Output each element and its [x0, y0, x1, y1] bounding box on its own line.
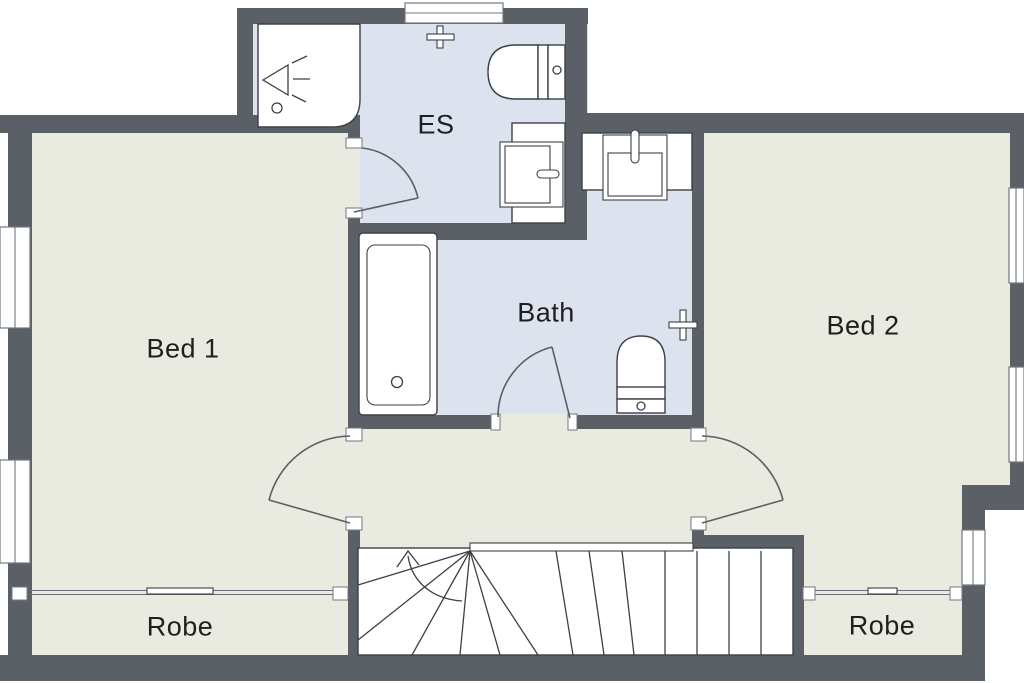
toilet: [617, 336, 665, 413]
room-label-ensuite: ES: [417, 110, 454, 141]
hall-floor: [348, 428, 704, 555]
faucet-icon: [631, 130, 639, 163]
bed1-floor: [10, 115, 360, 660]
wall-segment: [962, 485, 1024, 510]
room-label-bed1: Bed 1: [146, 334, 219, 365]
sliding-panel: [868, 588, 897, 594]
window: [962, 530, 985, 585]
wall-segment: [348, 415, 492, 429]
window: [405, 3, 503, 23]
room-label-bed2: Bed 2: [826, 311, 899, 342]
door-jamb: [346, 517, 362, 530]
stair-landing: [470, 543, 693, 551]
sliding-panel: [147, 588, 213, 594]
door-jamb: [12, 587, 27, 600]
door-jamb: [691, 517, 706, 530]
bathtub: [359, 233, 437, 415]
wall-segment: [692, 115, 704, 429]
wall-segment: [8, 115, 32, 660]
window: [1009, 367, 1024, 462]
door-jamb: [691, 428, 706, 441]
window: [0, 460, 30, 563]
floor-plan: Bed 1 ES Bath Bed 2 Robe Robe: [0, 0, 1024, 683]
staircase: [358, 543, 793, 655]
vanity-basin: [582, 130, 692, 200]
wall-segment: [237, 8, 253, 133]
window: [1009, 188, 1024, 283]
shower: [258, 24, 360, 127]
door-jamb: [950, 587, 962, 600]
stair-well: [358, 548, 793, 655]
faucet-icon: [537, 170, 559, 178]
door-jamb: [346, 428, 362, 441]
toilet: [488, 45, 565, 99]
bath-door-threshold: [500, 414, 568, 430]
window: [0, 227, 30, 328]
door-jamb: [803, 587, 815, 600]
door-jamb: [346, 138, 362, 148]
door-jamb: [333, 587, 348, 600]
room-label-robe-right: Robe: [849, 611, 916, 642]
room-label-robe-left: Robe: [147, 612, 214, 643]
door-jamb: [346, 208, 362, 218]
wall-segment: [348, 218, 360, 429]
room-label-bath: Bath: [517, 298, 575, 329]
wall-segment: [576, 415, 704, 429]
wall-segment: [0, 655, 985, 681]
